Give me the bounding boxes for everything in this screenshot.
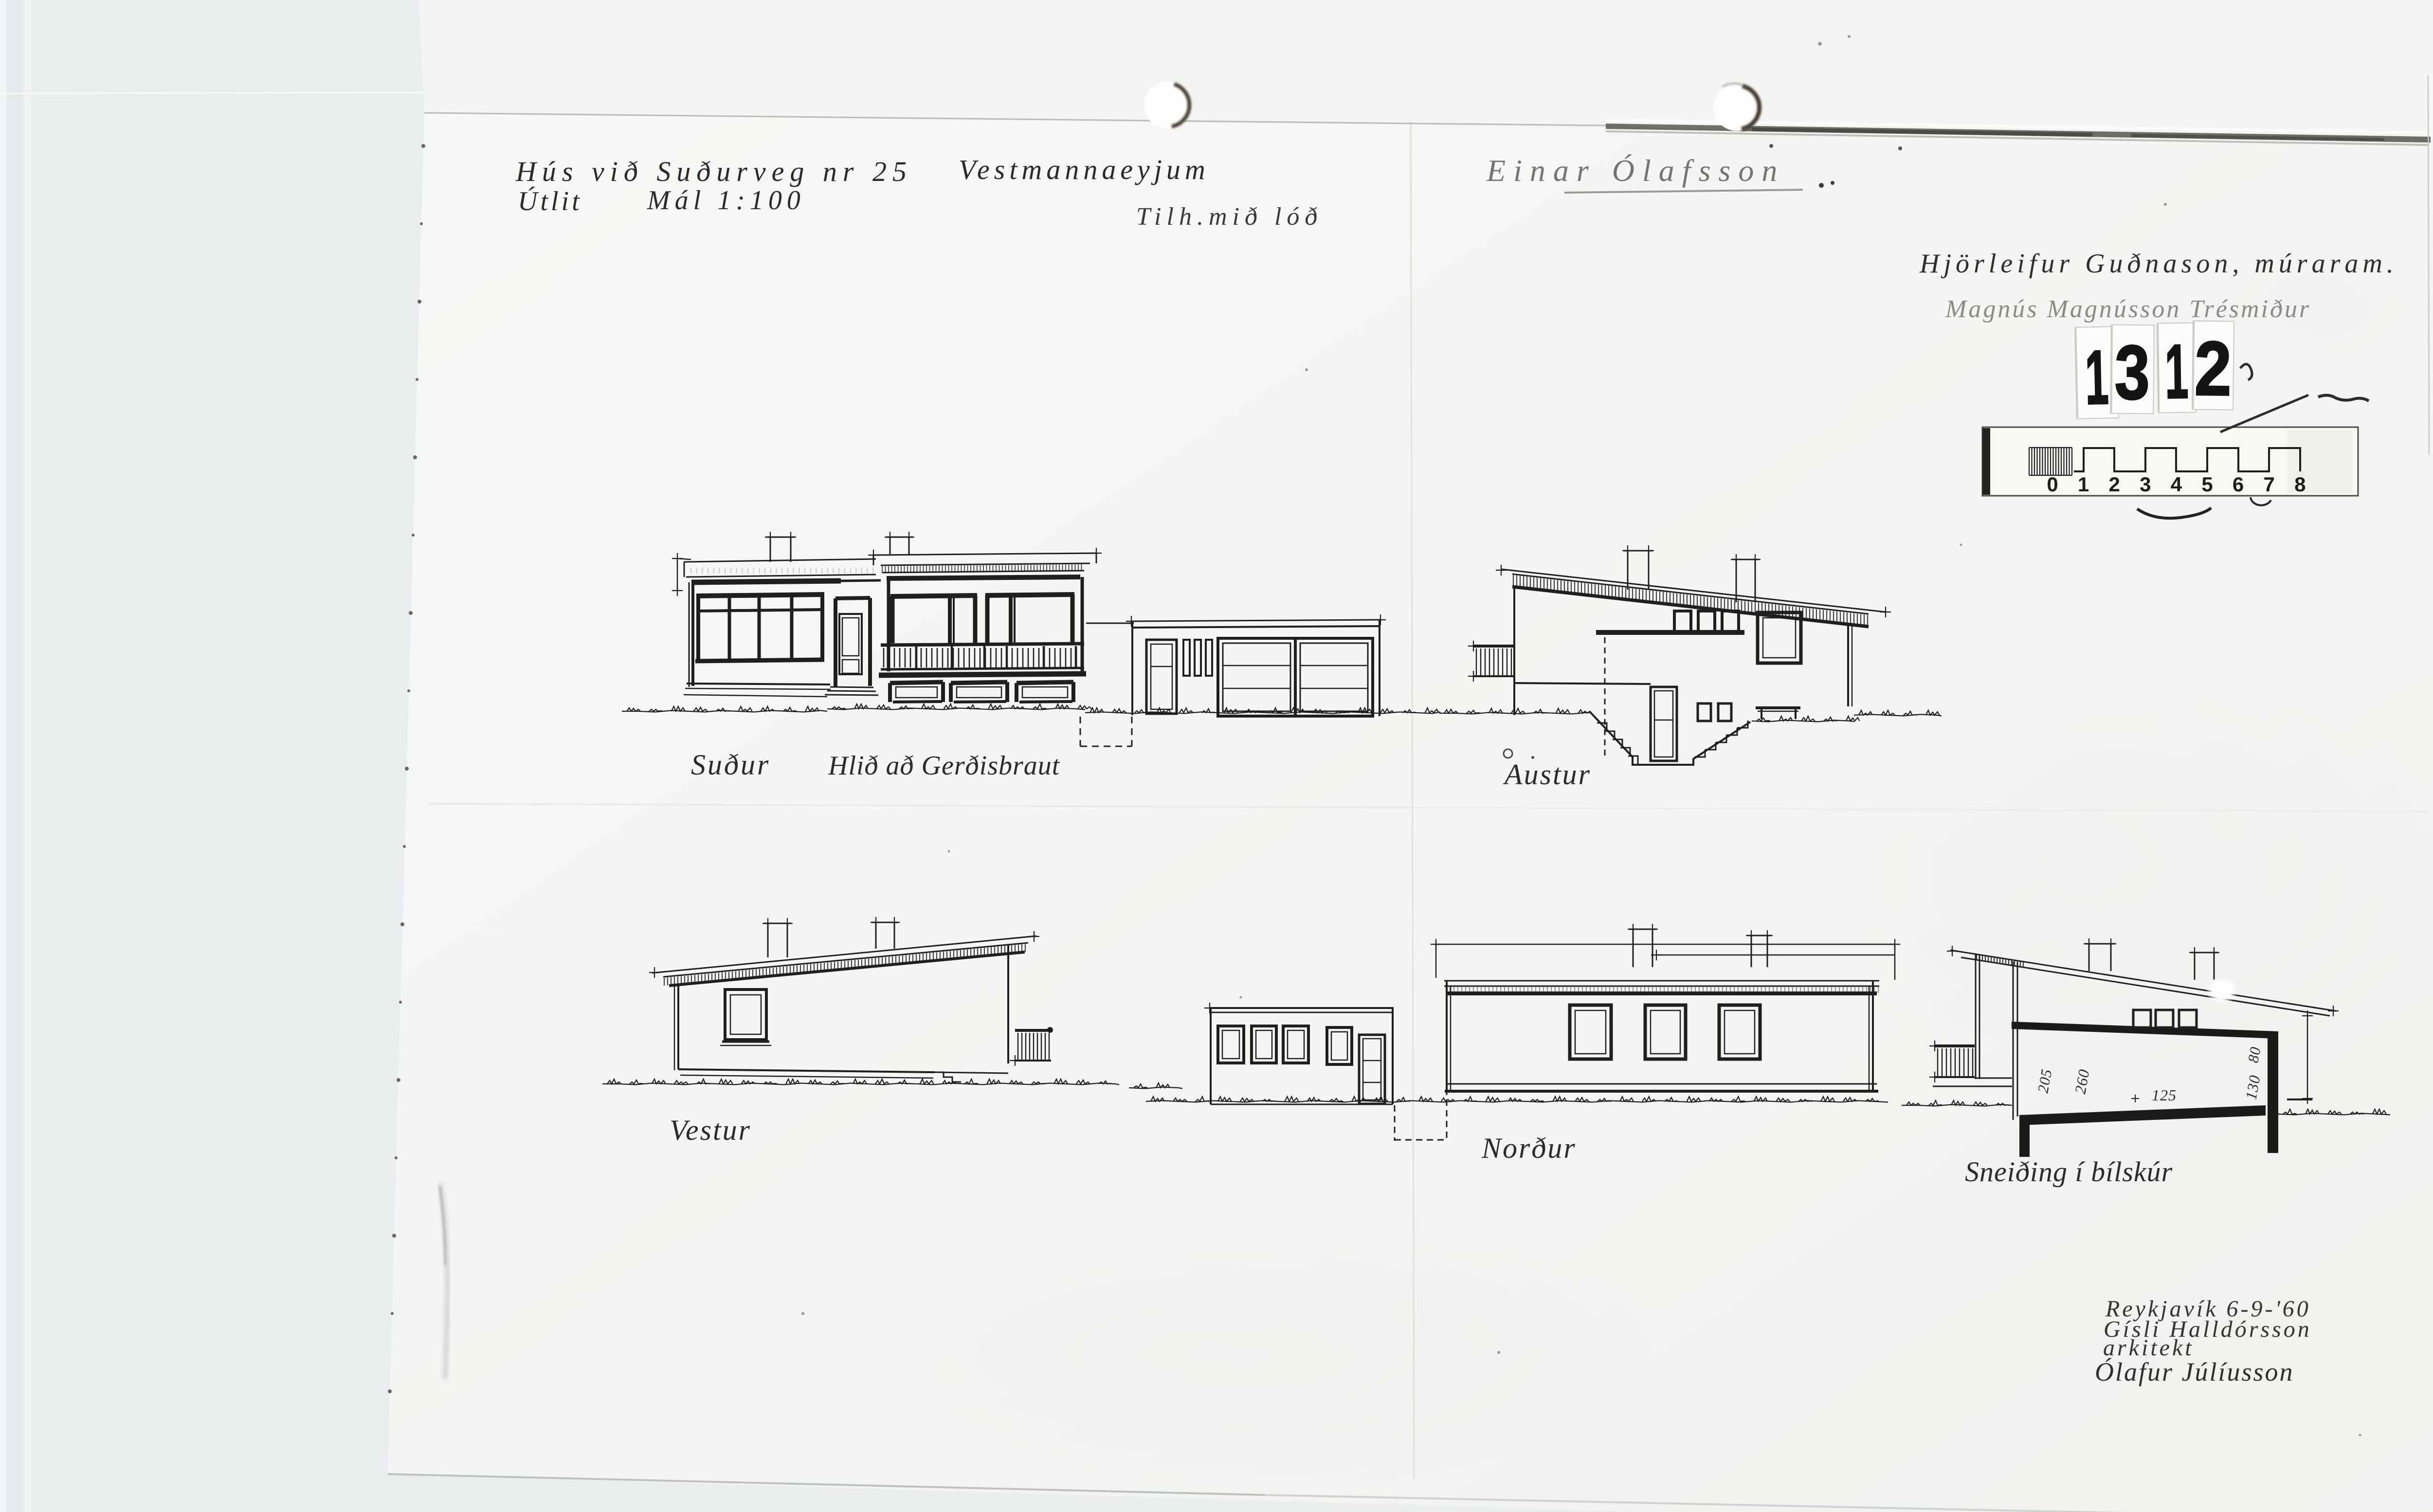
svg-text:Ólafur Júlíusson: Ólafur Júlíusson (2095, 1357, 2294, 1386)
svg-text:2: 2 (2109, 473, 2120, 496)
svg-text:1: 1 (2078, 473, 2089, 496)
svg-text:Vestmannaeyjum: Vestmannaeyjum (959, 154, 1210, 185)
svg-text:Suður: Suður (691, 749, 770, 781)
svg-text:Norður: Norður (1481, 1132, 1577, 1164)
svg-text:Sneiðing í bílskúr: Sneiðing í bílskúr (1965, 1156, 2173, 1188)
svg-text:Útlit: Útlit (518, 186, 582, 216)
svg-text:Mál 1:100: Mál 1:100 (647, 185, 805, 216)
svg-text:1: 1 (2084, 335, 2109, 421)
svg-text:6: 6 (2233, 473, 2244, 496)
svg-text:Hús við Suðurveg nr 25: Hús við Suðurveg nr 25 (515, 156, 912, 187)
svg-text:Hlið að Gerðisbraut: Hlið að Gerðisbraut (828, 751, 1060, 781)
svg-text:0: 0 (2047, 473, 2058, 496)
svg-text:4: 4 (2171, 473, 2182, 496)
svg-text:8: 8 (2294, 473, 2306, 496)
svg-text:5: 5 (2201, 473, 2213, 496)
svg-text:Austur: Austur (1503, 758, 1591, 791)
svg-text:Einar Ólafsson: Einar Ólafsson (1486, 153, 1785, 188)
svg-text:3: 3 (2140, 473, 2151, 496)
svg-text:Tilh.mið lóð: Tilh.mið lóð (1136, 203, 1323, 231)
svg-text:3: 3 (2114, 330, 2150, 416)
svg-text:Vestur: Vestur (670, 1114, 751, 1146)
svg-text:Hjörleifur Guðnason, múraram.: Hjörleifur Guðnason, múraram. (1919, 249, 2398, 279)
svg-text:7: 7 (2264, 473, 2275, 496)
svg-text:1: 1 (2164, 329, 2189, 415)
svg-text:2: 2 (2194, 326, 2232, 412)
svg-text:125: 125 (2152, 1086, 2177, 1104)
svg-text:Magnús Magnússon Trésmiður: Magnús Magnússon Trésmiður (1945, 295, 2311, 323)
svg-text:80: 80 (2244, 1045, 2264, 1064)
